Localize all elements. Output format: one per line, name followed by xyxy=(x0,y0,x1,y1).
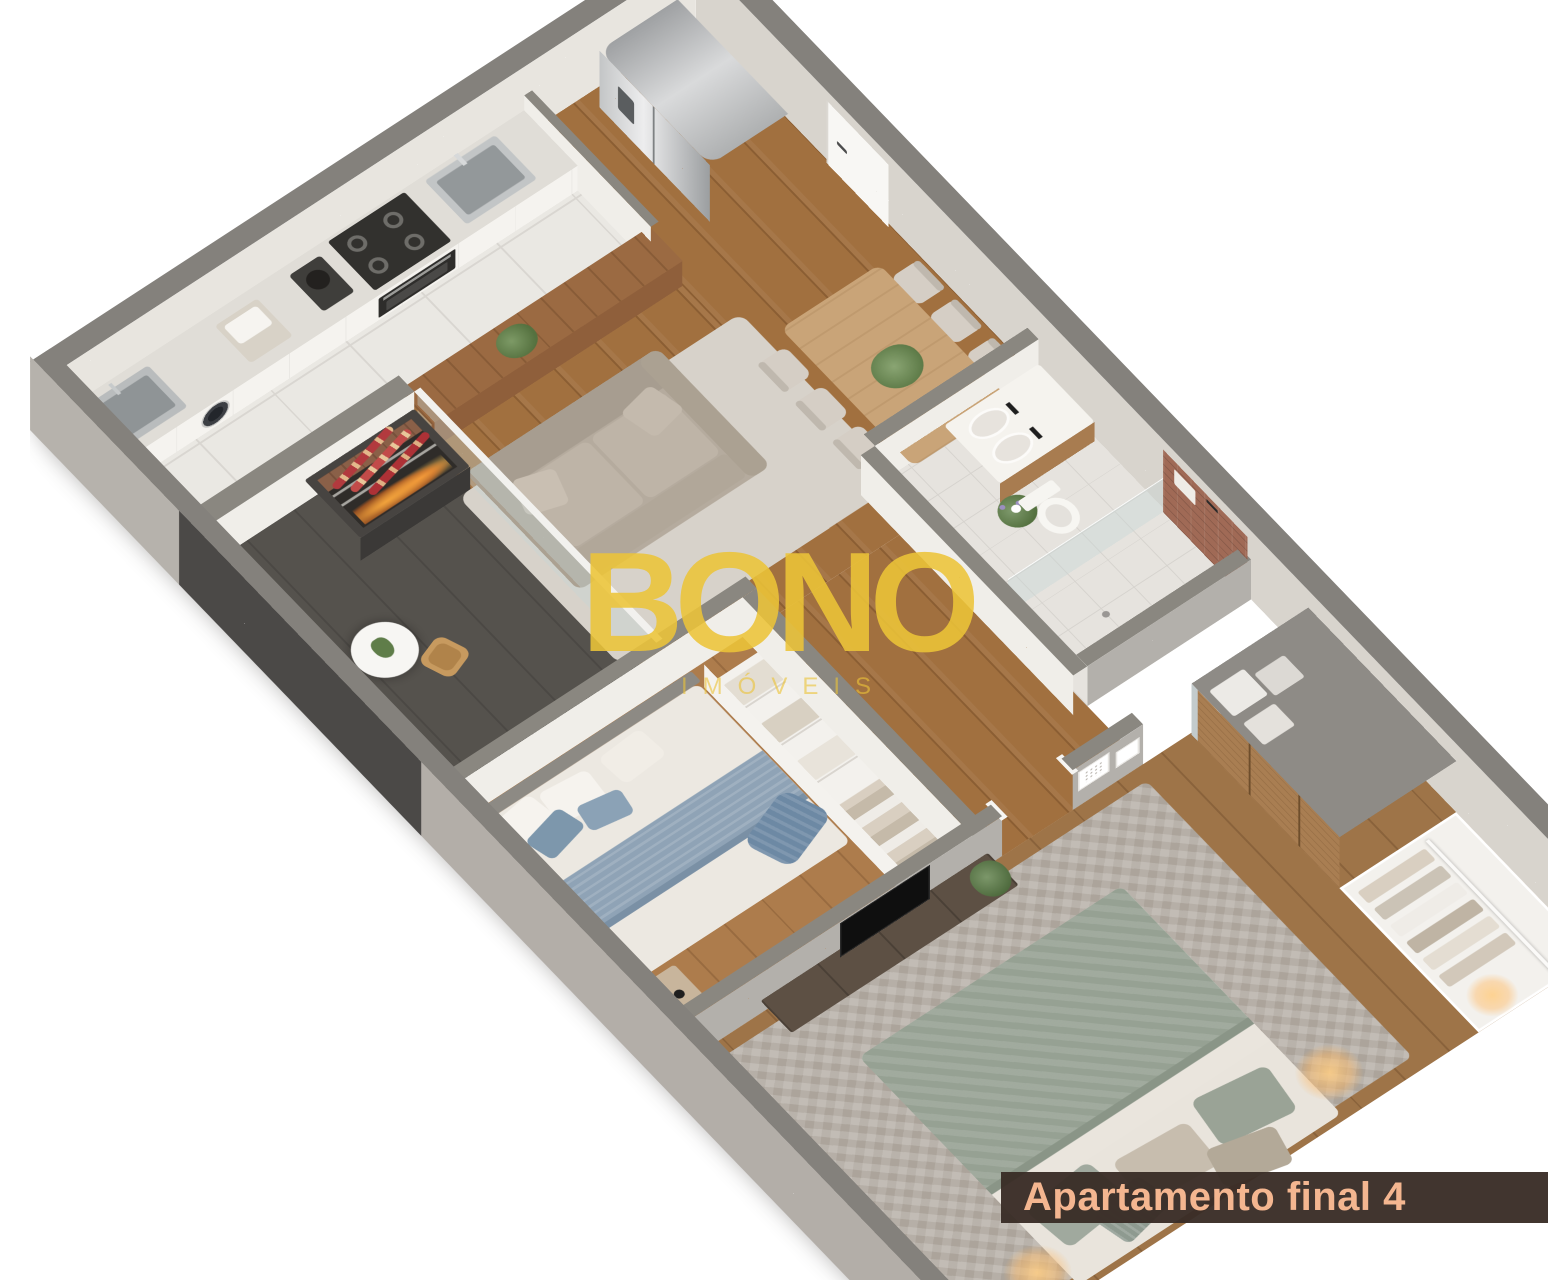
refrigerator-door-seam xyxy=(653,106,655,165)
hanging-garment xyxy=(1373,865,1452,921)
burner-icon xyxy=(343,232,371,255)
table-centerpiece-plant xyxy=(861,337,934,397)
water-dispenser xyxy=(618,86,634,126)
hanging-garment xyxy=(1422,915,1501,971)
wardrobe-mirror-strip xyxy=(1192,684,1198,742)
burner-icon xyxy=(364,254,392,277)
door-seam xyxy=(1249,743,1251,796)
storage-box xyxy=(1243,703,1295,745)
floorplan-scene xyxy=(30,0,1548,1280)
unit-label-text: Apartamento final 4 xyxy=(1023,1175,1406,1220)
closet-lamp-glow xyxy=(1456,965,1529,1025)
wicker-chair-seat xyxy=(426,641,465,673)
burner-icon xyxy=(379,209,407,232)
toilet-bowl xyxy=(1040,500,1077,532)
floorplan-floors xyxy=(30,0,1548,1280)
door-handle-icon xyxy=(837,141,847,155)
coffee-carafe xyxy=(301,266,335,294)
unit-label-banner: Apartamento final 4 xyxy=(1001,1172,1548,1223)
lavender-bloom xyxy=(998,504,1006,511)
apartment-3d-floorplan: BONO IMÓVEIS Apartamento final 4 xyxy=(0,0,1548,1280)
hanging-garment xyxy=(1390,882,1469,938)
door-seam xyxy=(1298,794,1300,847)
burner-icon xyxy=(400,230,428,253)
hanging-garment xyxy=(1438,932,1517,988)
